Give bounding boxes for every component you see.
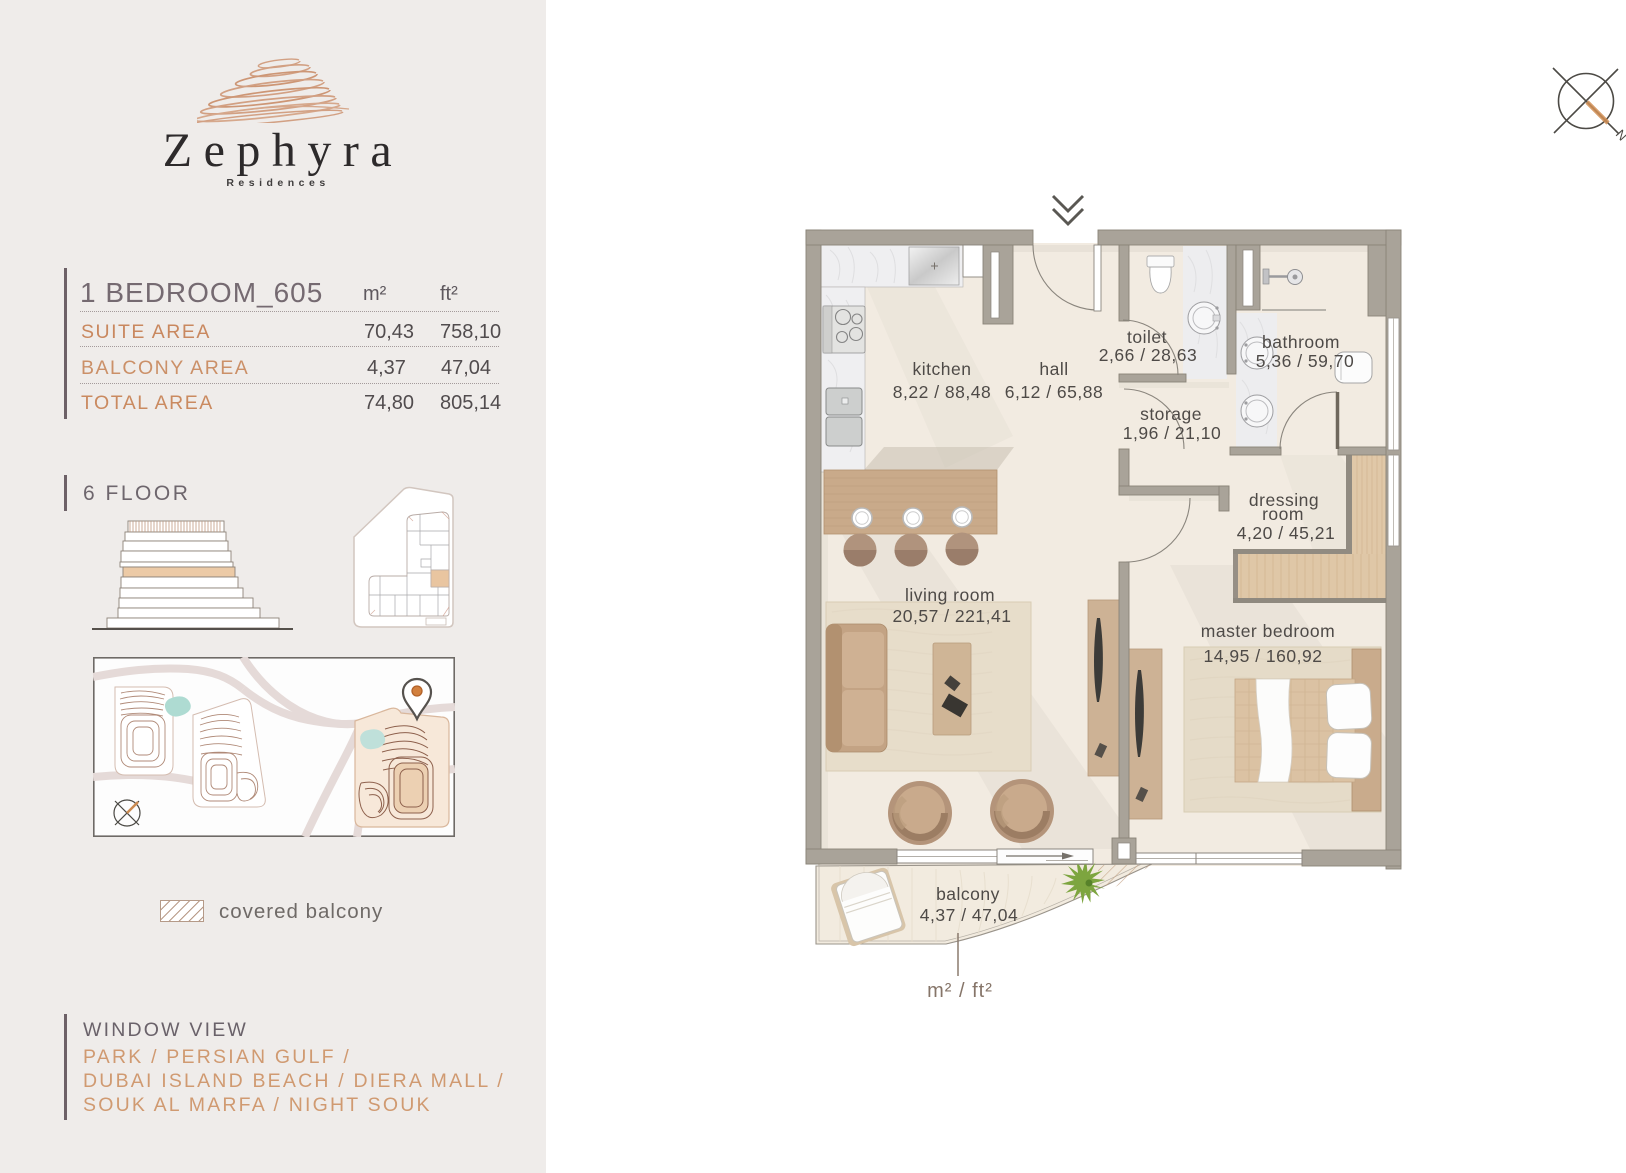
svg-text:2,66 / 28,63: 2,66 / 28,63 [1099,345,1197,365]
svg-text:5,36 / 59,70: 5,36 / 59,70 [1256,351,1354,371]
svg-text:6,12 / 65,88: 6,12 / 65,88 [1005,382,1103,402]
svg-text:m² / ft²: m² / ft² [927,980,993,1002]
svg-text:8,22 / 88,48: 8,22 / 88,48 [893,382,991,402]
svg-text:balcony: balcony [936,884,1000,904]
svg-text:4,37 / 47,04: 4,37 / 47,04 [920,905,1018,925]
svg-text:20,57 / 221,41: 20,57 / 221,41 [893,606,1012,626]
svg-text:bathroom: bathroom [1262,332,1340,352]
svg-text:1,96 / 21,10: 1,96 / 21,10 [1123,423,1221,443]
svg-text:14,95 / 160,92: 14,95 / 160,92 [1204,646,1323,666]
svg-text:toilet: toilet [1127,327,1167,347]
svg-text:living room: living room [905,585,995,605]
svg-text:storage: storage [1140,404,1202,424]
svg-text:kitchen: kitchen [913,359,972,379]
svg-text:master bedroom: master bedroom [1201,621,1335,641]
svg-text:hall: hall [1039,359,1068,379]
svg-text:room: room [1262,504,1304,524]
svg-text:4,20 / 45,21: 4,20 / 45,21 [1237,523,1335,543]
